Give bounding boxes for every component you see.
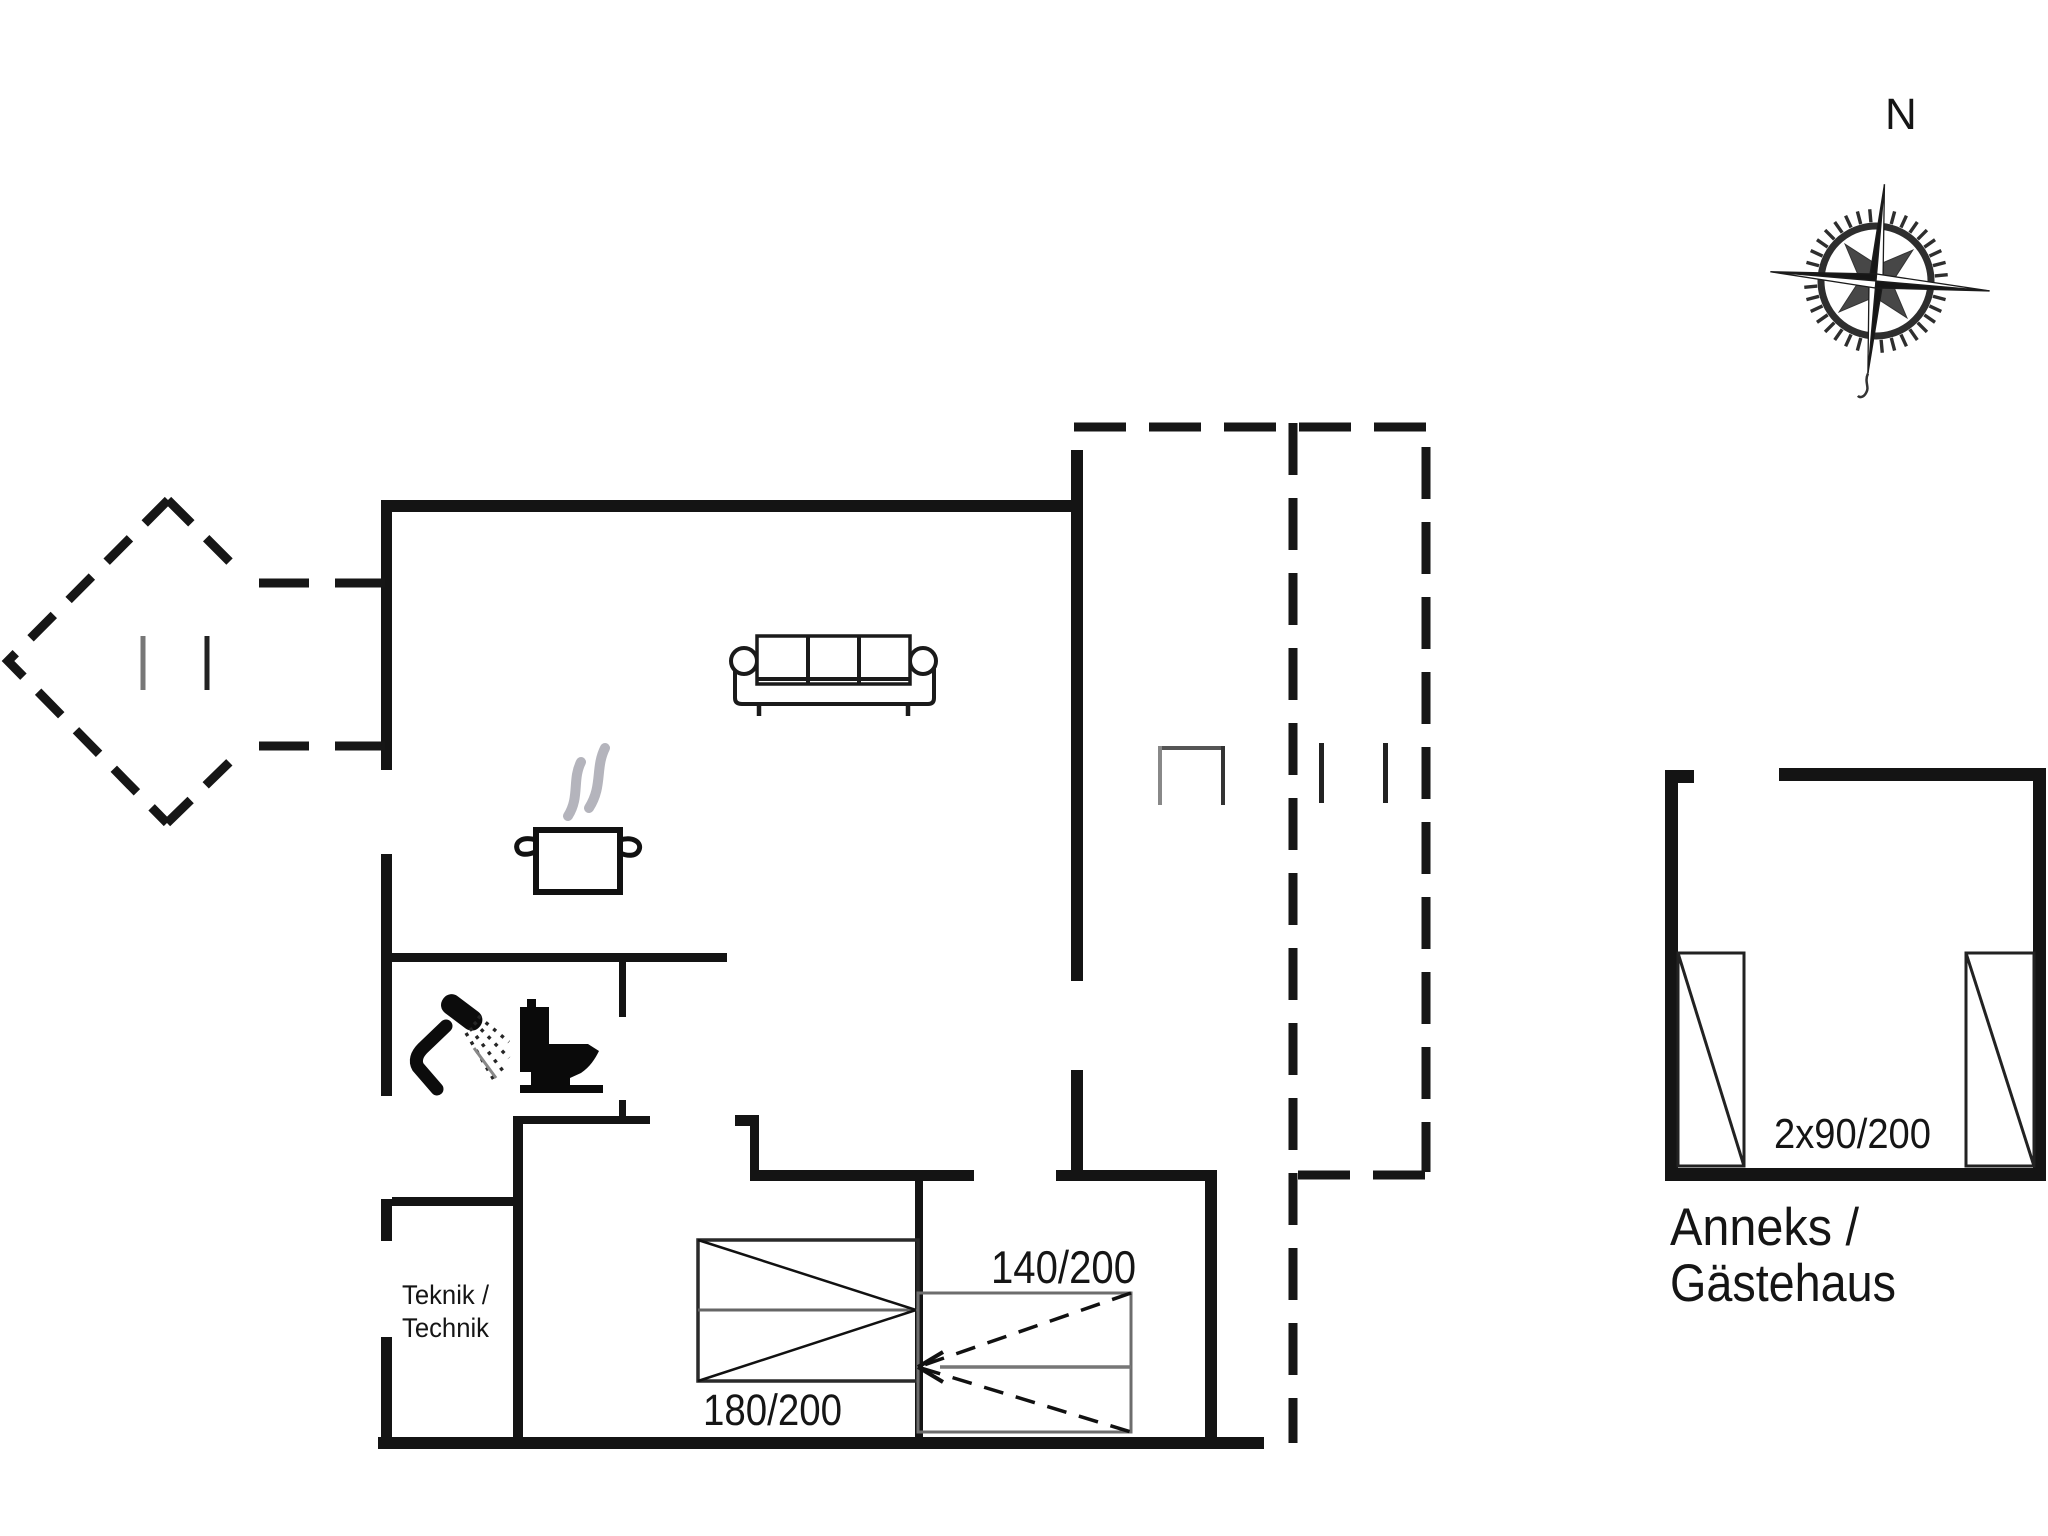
svg-text:Technik: Technik — [402, 1313, 489, 1343]
svg-text:Teknik /: Teknik / — [402, 1280, 489, 1310]
svg-text:140/200: 140/200 — [991, 1241, 1136, 1293]
svg-text:N: N — [1885, 90, 1917, 139]
svg-text:Anneks /: Anneks / — [1670, 1198, 1859, 1257]
svg-text:180/200: 180/200 — [703, 1386, 842, 1435]
svg-text:2x90/200: 2x90/200 — [1774, 1110, 1931, 1157]
svg-text:Gästehaus: Gästehaus — [1670, 1254, 1896, 1313]
